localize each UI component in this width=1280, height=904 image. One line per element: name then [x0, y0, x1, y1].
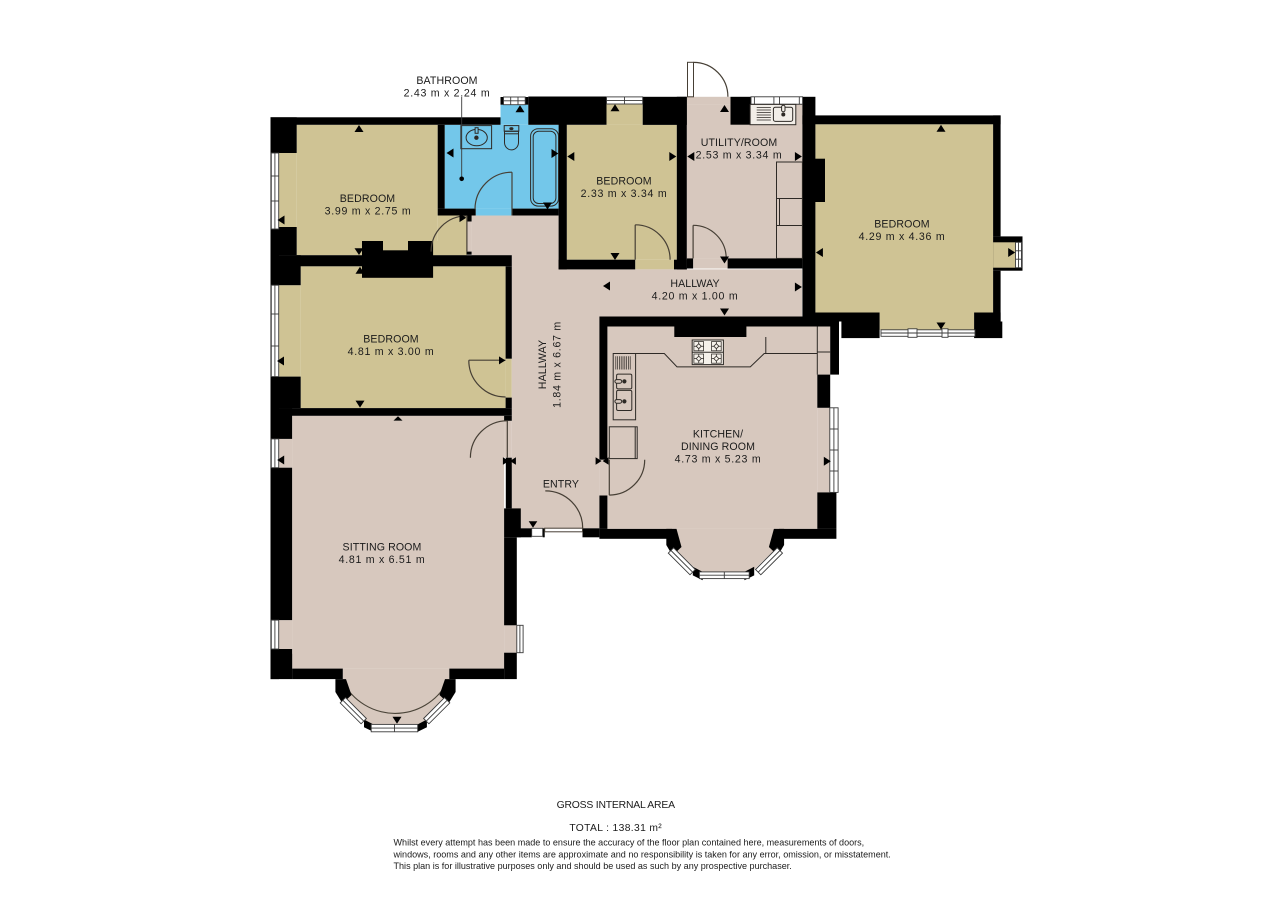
svg-text:UTILITY/ROOM: UTILITY/ROOM — [701, 137, 778, 149]
svg-text:2.53 m x 3.34 m: 2.53 m x 3.34 m — [696, 150, 783, 162]
svg-text:TOTAL : 138.31 m²: TOTAL : 138.31 m² — [569, 823, 662, 834]
svg-text:This plan is for illustrative: This plan is for illustrative purposes o… — [394, 861, 792, 871]
svg-text:BEDROOM: BEDROOM — [596, 175, 651, 187]
svg-text:GROSS INTERNAL AREA: GROSS INTERNAL AREA — [557, 800, 675, 811]
svg-text:BEDROOM: BEDROOM — [340, 193, 395, 205]
svg-text:BEDROOM: BEDROOM — [363, 334, 418, 346]
svg-text:ENTRY: ENTRY — [543, 479, 579, 491]
svg-text:2.33 m x 3.34 m: 2.33 m x 3.34 m — [581, 188, 668, 200]
svg-text:SITTING ROOM: SITTING ROOM — [343, 542, 422, 554]
svg-text:4.20 m x 1.00 m: 4.20 m x 1.00 m — [652, 291, 739, 303]
svg-text:4.81 m x 3.00 m: 4.81 m x 3.00 m — [348, 346, 435, 358]
svg-text:4.81 m x 6.51 m: 4.81 m x 6.51 m — [339, 554, 426, 566]
svg-text:windows, rooms and any other i: windows, rooms and any other items are a… — [393, 850, 891, 860]
svg-text:DINING ROOM: DINING ROOM — [681, 441, 755, 453]
svg-text:HALLWAY: HALLWAY — [670, 278, 719, 290]
svg-text:HALLWAY: HALLWAY — [537, 340, 549, 389]
svg-text:3.99 m x 2.75 m: 3.99 m x 2.75 m — [325, 206, 412, 218]
svg-text:4.73 m x 5.23 m: 4.73 m x 5.23 m — [675, 454, 762, 466]
svg-text:BEDROOM: BEDROOM — [874, 219, 929, 231]
svg-text:1.84 m x 6.67 m: 1.84 m x 6.67 m — [552, 321, 564, 408]
svg-text:2.43 m x 2.24 m: 2.43 m x 2.24 m — [404, 88, 491, 100]
svg-text:Whilst every attempt has been: Whilst every attempt has been made to en… — [394, 837, 865, 847]
svg-text:4.29 m x 4.36 m: 4.29 m x 4.36 m — [859, 231, 946, 243]
svg-text:KITCHEN/: KITCHEN/ — [693, 428, 743, 440]
svg-text:BATHROOM: BATHROOM — [416, 75, 477, 87]
